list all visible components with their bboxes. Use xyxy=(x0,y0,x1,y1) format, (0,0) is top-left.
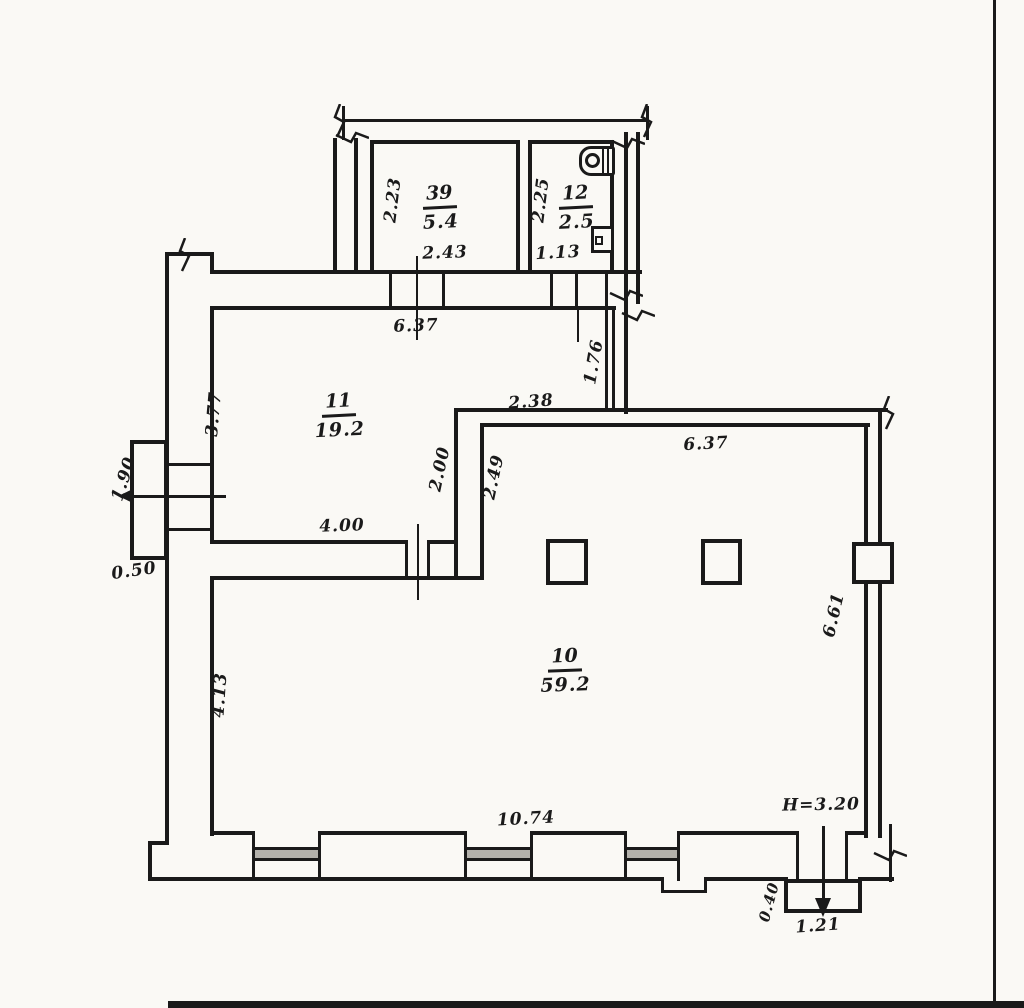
dim-main-top-width: 6.37 xyxy=(682,433,731,455)
room-39-label: 39 5.4 xyxy=(413,181,468,235)
wall-band-lower-face xyxy=(210,306,616,310)
break-mark xyxy=(611,135,645,151)
dim-ceiling-height: H=3.20 xyxy=(782,795,860,814)
left-window-sill xyxy=(165,528,214,531)
top-dimension-line xyxy=(343,119,648,122)
door-jamb xyxy=(427,540,430,580)
break-mark xyxy=(638,104,654,138)
wall-bottom-inner xyxy=(678,831,799,835)
wall-vert-inner xyxy=(480,423,484,580)
window-2-jamb xyxy=(530,831,533,881)
door-jamb xyxy=(796,831,799,881)
entry-arrow-down-icon xyxy=(815,898,831,917)
wall-jog-right-a xyxy=(605,306,608,412)
door-jamb xyxy=(575,270,578,310)
window-3-jamb xyxy=(677,831,680,881)
dim-entry-depth: 0.50 xyxy=(111,559,157,583)
wall-vert-outer xyxy=(454,408,458,580)
room-area: 2.5 xyxy=(552,208,601,234)
wall-right-outer xyxy=(878,408,882,838)
room-area: 19.2 xyxy=(312,416,367,443)
wall-bottom-inner xyxy=(210,831,255,835)
wall-divider-top-right xyxy=(428,540,458,544)
wall-bottom-inner xyxy=(531,831,627,835)
column-1 xyxy=(546,539,588,585)
door-jamb xyxy=(550,270,553,310)
entry-arrow-shaft xyxy=(130,495,226,498)
room-11-label: 11 19.2 xyxy=(311,389,368,443)
window-1-glass xyxy=(255,850,318,858)
wall-bottom-outer xyxy=(704,877,788,881)
room-number: 12 xyxy=(557,181,593,210)
dim-main-right-height: 6.61 xyxy=(820,592,847,639)
window-1-line xyxy=(252,847,321,850)
dimension-tick xyxy=(577,306,579,342)
toilet-grill-line xyxy=(607,149,609,173)
window-3-line xyxy=(624,858,680,861)
dimension-tick xyxy=(417,524,419,600)
wall-bottom-inner xyxy=(846,831,868,835)
wall-upper-left-inner xyxy=(354,138,358,274)
dim-opening-width: 4.00 xyxy=(318,515,367,537)
door-jamb xyxy=(389,270,392,310)
door-jamb xyxy=(845,831,848,881)
window-2-line xyxy=(464,847,533,850)
window-3-line xyxy=(624,847,680,850)
wall-niche-inner xyxy=(480,423,870,427)
wall-right-inner xyxy=(864,423,868,838)
dim-porch-width: 1.21 xyxy=(791,914,844,938)
floor-plan: 39 5.4 12 2.5 11 19.2 10 59.2 2.23 2.43 … xyxy=(0,0,1024,1008)
left-step-vertical xyxy=(148,841,152,881)
door-jamb xyxy=(442,270,445,310)
left-step-horizontal xyxy=(148,841,169,845)
break-mark xyxy=(873,847,907,863)
wall-bottom-outer xyxy=(150,877,663,881)
break-mark xyxy=(621,307,655,323)
dim-hall-height: 3.77 xyxy=(202,391,226,437)
dim-niche-width: 2.38 xyxy=(507,390,554,413)
dim-wall-seg-a: 2.00 xyxy=(427,446,454,493)
column-2 xyxy=(701,539,742,585)
wall-upper-left-outer xyxy=(333,138,337,274)
wall-bottom-inner xyxy=(319,831,467,835)
window-1-line xyxy=(252,858,321,861)
window-2-line xyxy=(464,858,533,861)
window-2-glass xyxy=(467,850,530,858)
dim-porch-depth: 0.40 xyxy=(756,880,782,925)
room-10-label: 10 59.2 xyxy=(537,644,593,697)
left-window-head xyxy=(165,463,214,466)
window-3-glass xyxy=(627,850,677,858)
dim-jog-height: 1.76 xyxy=(580,339,607,386)
page-border-right xyxy=(993,0,996,1008)
room-number: 39 xyxy=(421,181,457,210)
room-12-label: 12 2.5 xyxy=(551,181,602,234)
room-area: 59.2 xyxy=(538,671,593,697)
sink-tap xyxy=(595,236,603,245)
wall-jog-right-b xyxy=(612,306,615,412)
room-area: 5.4 xyxy=(414,208,467,235)
toilet-tank-circle xyxy=(585,153,600,168)
wall-divider-top xyxy=(210,540,406,544)
door-jamb xyxy=(605,270,608,310)
toilet-grill-line xyxy=(602,149,604,173)
entry-arrow-bottom-shaft xyxy=(822,826,825,902)
dim-wall-seg-b: 2.49 xyxy=(481,454,508,501)
break-mark xyxy=(335,129,369,145)
door-jamb xyxy=(405,540,408,580)
page-edge-bottom xyxy=(168,1001,1024,1008)
dim-hall-width: 6.37 xyxy=(392,315,441,337)
dim-room39-width: 2.43 xyxy=(420,242,471,264)
wall-bottom-outer xyxy=(858,877,894,881)
break-mark xyxy=(609,287,643,303)
room-number: 11 xyxy=(320,389,356,418)
break-mark xyxy=(176,238,192,272)
room-number: 10 xyxy=(547,644,582,672)
window-1-jamb xyxy=(318,831,321,881)
dim-room12-width: 1.13 xyxy=(536,242,581,264)
wall-upper-right-outer xyxy=(636,132,640,304)
wall-divider-bottom xyxy=(210,576,484,580)
dim-main-left-height: 4.13 xyxy=(209,672,230,717)
bottom-notch-base xyxy=(661,890,707,893)
dim-main-bottom-width: 10.74 xyxy=(498,809,555,830)
break-mark xyxy=(880,396,896,430)
right-pilaster xyxy=(852,542,894,584)
